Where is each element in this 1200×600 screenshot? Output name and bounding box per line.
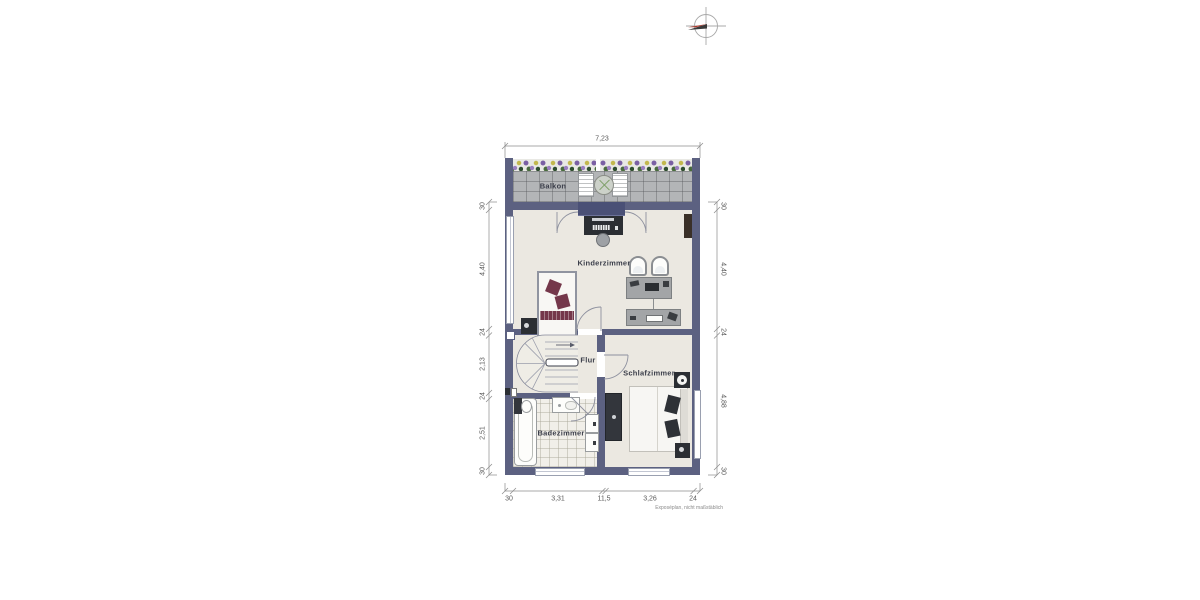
dim-left-4: 2,13 bbox=[480, 357, 487, 371]
dim-left-6: 2,51 bbox=[480, 426, 487, 440]
dimension-lines bbox=[486, 142, 720, 494]
room-label-kinderzimmer: Kinderzimmer bbox=[577, 259, 630, 268]
dim-left-3: 24 bbox=[480, 328, 487, 336]
dim-bottom-1: 30 bbox=[505, 496, 513, 503]
room-label-schlafzimmer: Schlafzimmer bbox=[623, 369, 675, 378]
room-label-badezimmer: Badezimmer bbox=[537, 429, 584, 438]
dim-right-5: 30 bbox=[720, 467, 727, 475]
dim-bottom-3: 11,5 bbox=[597, 496, 610, 503]
dim-bottom-5: 24 bbox=[689, 496, 697, 503]
stairs-icon bbox=[517, 335, 579, 392]
dim-left-7: 30 bbox=[480, 467, 487, 475]
plan-linework bbox=[0, 0, 1200, 600]
plan-footnote: Exposéplan, nicht maßstäblich bbox=[655, 505, 723, 511]
room-label-flur: Flur bbox=[580, 356, 595, 365]
compass-icon bbox=[686, 7, 726, 45]
dim-top-total: 7,23 bbox=[595, 136, 609, 143]
floorplan-page: { "plan": { "type": "floorplan", "footno… bbox=[0, 0, 1200, 600]
dim-right-4: 4,88 bbox=[720, 394, 727, 408]
dim-right-3: 24 bbox=[720, 328, 727, 336]
dim-right-2: 4,40 bbox=[720, 262, 727, 276]
dim-left-5: 24 bbox=[480, 392, 487, 400]
dim-left-2: 4,40 bbox=[480, 262, 487, 276]
dim-right-1: 30 bbox=[720, 202, 727, 210]
dim-left-1: 30 bbox=[480, 202, 487, 210]
dim-bottom-4: 3,26 bbox=[643, 496, 657, 503]
dim-bottom-2: 3,31 bbox=[551, 496, 565, 503]
room-label-balkon: Balkon bbox=[540, 182, 567, 191]
